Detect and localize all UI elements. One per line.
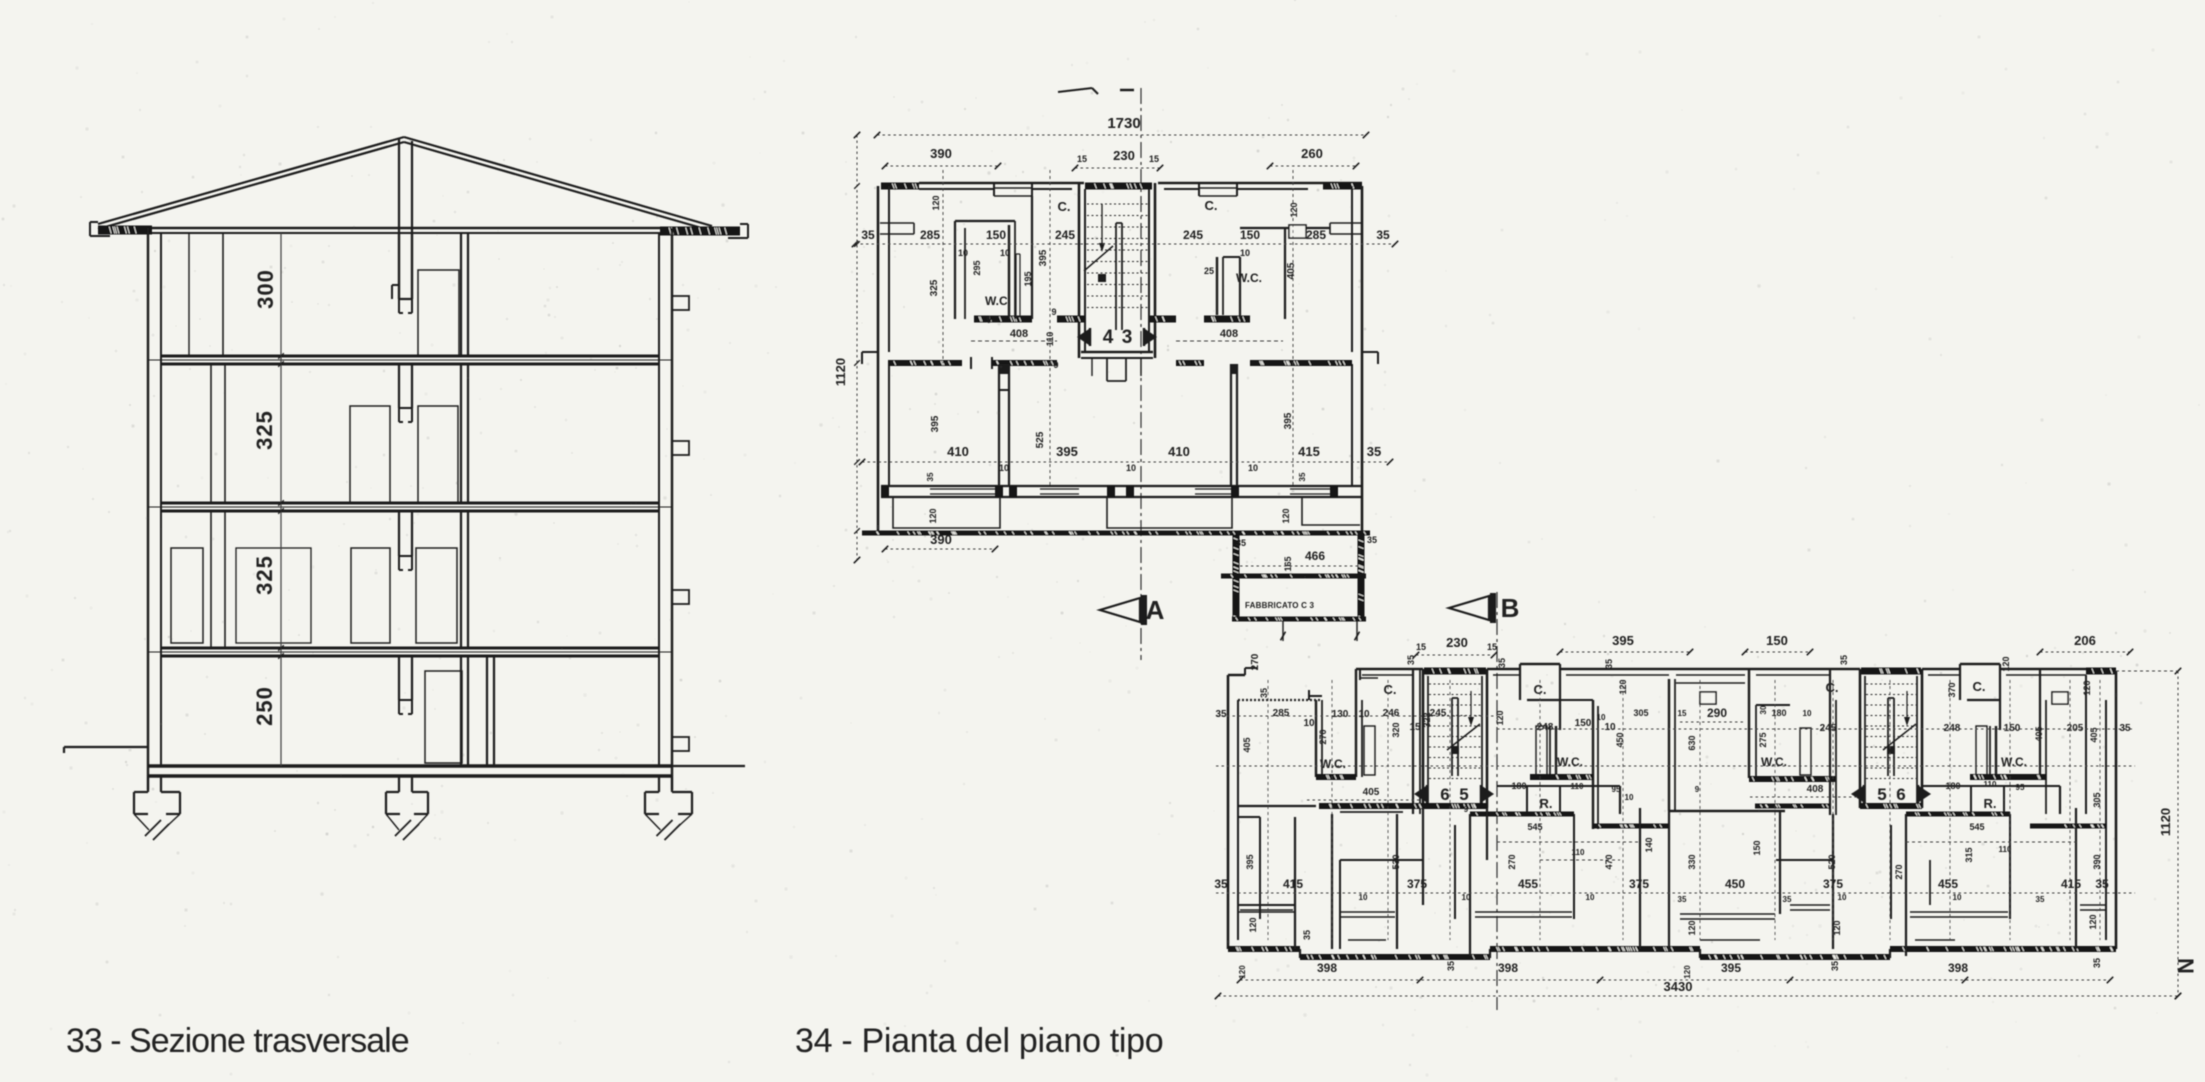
svg-text:398: 398 [1948, 961, 1968, 975]
svg-text:35: 35 [1215, 709, 1227, 720]
svg-text:525: 525 [1035, 431, 1046, 448]
svg-text:230: 230 [1446, 635, 1468, 650]
svg-text:395: 395 [930, 415, 941, 432]
svg-text:W.C.: W.C. [985, 294, 1011, 308]
svg-text:35: 35 [1367, 444, 1381, 459]
svg-text:395: 395 [1283, 412, 1294, 429]
svg-text:275: 275 [1758, 732, 1768, 747]
svg-text:285: 285 [1273, 708, 1290, 719]
svg-text:375: 375 [1629, 877, 1649, 891]
svg-text:10: 10 [999, 463, 1009, 473]
svg-text:120: 120 [1238, 965, 1247, 979]
svg-text:3430: 3430 [1664, 979, 1693, 994]
svg-text:315: 315 [1964, 847, 1974, 862]
svg-text:6: 6 [1896, 785, 1905, 804]
svg-text:FABBRICATO C 3: FABBRICATO C 3 [1245, 601, 1315, 610]
svg-text:180: 180 [1771, 708, 1786, 718]
svg-text:405: 405 [2089, 727, 2099, 742]
svg-text:205: 205 [2067, 723, 2084, 734]
svg-text:395: 395 [1056, 444, 1078, 459]
svg-text:390: 390 [2092, 854, 2102, 869]
svg-text:410: 410 [1168, 444, 1190, 459]
svg-text:1120: 1120 [2158, 808, 2173, 836]
svg-text:206: 206 [2074, 633, 2096, 648]
svg-text:6: 6 [1440, 785, 1449, 804]
svg-text:9: 9 [1695, 785, 1700, 794]
svg-text:120: 120 [1495, 710, 1505, 725]
svg-text:270: 270 [1318, 729, 1328, 744]
svg-text:260: 260 [1301, 146, 1323, 161]
svg-text:120: 120 [928, 508, 938, 523]
svg-text:165: 165 [1283, 556, 1293, 571]
svg-text:375: 375 [1823, 877, 1843, 891]
svg-text:110: 110 [1984, 780, 1997, 789]
svg-text:405: 405 [2034, 726, 2044, 741]
svg-text:110: 110 [1045, 332, 1055, 347]
svg-text:35: 35 [1214, 877, 1228, 891]
svg-text:390: 390 [930, 146, 952, 161]
svg-text:C.: C. [1384, 682, 1397, 697]
svg-text:130: 130 [1332, 709, 1349, 720]
svg-text:10: 10 [1953, 893, 1962, 902]
svg-text:140: 140 [1644, 837, 1654, 852]
svg-text:35: 35 [2092, 958, 2102, 968]
svg-text:35: 35 [1302, 930, 1312, 940]
svg-text:35: 35 [926, 472, 935, 481]
svg-text:270: 270 [1507, 854, 1517, 869]
svg-text:C.: C. [1973, 679, 1986, 694]
svg-text:120: 120 [1832, 920, 1842, 935]
svg-text:415: 415 [1283, 877, 1303, 891]
svg-text:395: 395 [1245, 854, 1255, 869]
svg-text:305: 305 [2092, 792, 2102, 807]
svg-text:150: 150 [1766, 633, 1788, 648]
svg-text:10: 10 [1359, 893, 1368, 902]
svg-text:10: 10 [1604, 722, 1616, 733]
svg-text:120: 120 [1248, 917, 1258, 932]
svg-text:245: 245 [1055, 228, 1075, 242]
svg-text:1120: 1120 [833, 358, 848, 386]
svg-text:320: 320 [1391, 722, 1401, 737]
svg-text:5: 5 [1459, 785, 1468, 804]
svg-text:35: 35 [1678, 895, 1687, 904]
svg-text:W.C.: W.C. [1320, 757, 1346, 771]
svg-text:10: 10 [1240, 248, 1250, 258]
svg-text:10: 10 [1000, 248, 1010, 258]
svg-text:4: 4 [1103, 327, 1114, 348]
svg-text:405: 405 [1242, 737, 1252, 752]
svg-text:33 - Sezione trasversale: 33 - Sezione trasversale [66, 1022, 409, 1060]
svg-text:35: 35 [1236, 538, 1246, 548]
svg-text:520: 520 [1827, 854, 1837, 869]
svg-text:A: A [1146, 595, 1165, 625]
svg-text:15: 15 [1416, 642, 1426, 652]
svg-text:230: 230 [1113, 148, 1135, 163]
svg-text:150: 150 [2004, 723, 2021, 734]
svg-text:408: 408 [1807, 784, 1824, 795]
svg-text:245: 245 [1820, 723, 1837, 734]
svg-text:10: 10 [1803, 709, 1812, 718]
svg-text:150: 150 [1752, 840, 1762, 855]
svg-text:466: 466 [1305, 549, 1325, 563]
svg-text:N: N [2173, 958, 2198, 974]
svg-text:375: 375 [1407, 877, 1427, 891]
svg-text:10: 10 [1586, 893, 1595, 902]
svg-text:322: 322 [1422, 712, 1432, 727]
svg-text:10: 10 [958, 248, 968, 258]
svg-text:35: 35 [2036, 895, 2045, 904]
svg-text:325: 325 [929, 279, 940, 296]
svg-text:295: 295 [972, 260, 982, 275]
svg-text:10: 10 [1625, 793, 1634, 802]
svg-text:10: 10 [1303, 718, 1315, 729]
svg-text:180: 180 [1945, 781, 1960, 791]
svg-text:370: 370 [1947, 682, 1957, 697]
svg-text:R.: R. [1540, 796, 1553, 811]
svg-text:35: 35 [1298, 472, 1307, 481]
svg-text:W.C.: W.C. [1557, 755, 1583, 769]
svg-text:30: 30 [1759, 705, 1768, 714]
svg-text:C.: C. [1205, 198, 1218, 213]
svg-text:35: 35 [2095, 877, 2109, 891]
svg-text:248: 248 [1944, 723, 1961, 734]
svg-text:330: 330 [1687, 854, 1697, 869]
svg-text:270: 270 [1894, 864, 1904, 879]
svg-text:408: 408 [1010, 328, 1028, 340]
svg-text:1730: 1730 [1107, 115, 1140, 132]
svg-text:34 - Pianta del piano tipo: 34 - Pianta del piano tipo [795, 1022, 1163, 1060]
svg-text:25: 25 [1204, 266, 1214, 276]
svg-text:120: 120 [1289, 202, 1299, 217]
svg-text:150: 150 [986, 228, 1006, 242]
svg-text:35: 35 [1604, 659, 1614, 669]
svg-text:530: 530 [1391, 854, 1401, 869]
svg-text:410: 410 [947, 444, 969, 459]
svg-text:195: 195 [1023, 271, 1033, 286]
svg-text:35: 35 [1839, 655, 1849, 665]
svg-text:W.C.: W.C. [1236, 271, 1262, 285]
svg-text:110: 110 [1571, 782, 1584, 791]
svg-text:120: 120 [2082, 680, 2092, 695]
svg-text:390: 390 [930, 532, 952, 547]
svg-text:250: 250 [252, 686, 277, 726]
svg-text:10: 10 [1462, 893, 1471, 902]
svg-text:9: 9 [1053, 360, 1058, 370]
svg-text:455: 455 [1518, 877, 1538, 891]
svg-text:15: 15 [1077, 154, 1087, 164]
svg-text:5: 5 [1877, 785, 1886, 804]
svg-text:305: 305 [1633, 708, 1648, 718]
svg-text:120: 120 [931, 195, 941, 210]
svg-text:9: 9 [1464, 805, 1469, 814]
svg-text:285: 285 [1306, 228, 1326, 242]
svg-text:10: 10 [1126, 463, 1136, 473]
svg-text:325: 325 [252, 555, 277, 595]
svg-text:395: 395 [1721, 961, 1741, 975]
svg-text:95: 95 [1612, 785, 1621, 794]
svg-text:35: 35 [1259, 688, 1269, 698]
svg-text:248: 248 [1537, 722, 1554, 733]
svg-text:455: 455 [1938, 877, 1958, 891]
svg-text:405: 405 [1363, 787, 1380, 798]
svg-text:35: 35 [1406, 655, 1416, 665]
svg-text:630: 630 [1687, 735, 1697, 750]
svg-text:245: 245 [1183, 228, 1203, 242]
svg-text:15: 15 [1678, 709, 1687, 718]
svg-text:325: 325 [252, 410, 277, 450]
svg-text:450: 450 [1615, 732, 1625, 747]
svg-text:35: 35 [2119, 723, 2131, 734]
svg-text:150: 150 [1575, 718, 1592, 729]
svg-text:395: 395 [1612, 633, 1634, 648]
svg-text:10: 10 [1248, 463, 1258, 473]
svg-text:35: 35 [1783, 895, 1792, 904]
svg-text:35: 35 [1497, 658, 1507, 668]
svg-text:R.: R. [1984, 796, 1997, 811]
svg-text:270: 270 [1250, 653, 1261, 670]
svg-text:120: 120 [2088, 914, 2098, 929]
svg-text:120: 120 [2001, 656, 2011, 671]
svg-text:545: 545 [1969, 822, 1984, 832]
svg-text:246: 246 [1383, 708, 1400, 719]
svg-text:9: 9 [986, 315, 991, 325]
svg-text:120: 120 [1683, 965, 1692, 979]
svg-text:415: 415 [1298, 444, 1320, 459]
svg-text:C.: C. [1058, 199, 1071, 214]
svg-text:10: 10 [1597, 713, 1606, 722]
svg-text:B: B [1501, 593, 1520, 623]
svg-text:398: 398 [1498, 961, 1518, 975]
svg-text:470: 470 [1604, 854, 1614, 869]
svg-text:10: 10 [1838, 893, 1847, 902]
svg-text:35: 35 [1830, 961, 1840, 971]
svg-text:415: 415 [2061, 877, 2081, 891]
svg-text:290: 290 [1707, 706, 1727, 720]
svg-text:245: 245 [1430, 708, 1447, 719]
svg-text:W.C.: W.C. [1761, 755, 1787, 769]
svg-text:300: 300 [253, 269, 278, 309]
svg-text:120: 120 [1281, 508, 1291, 523]
svg-text:405: 405 [1286, 262, 1297, 279]
svg-text:35: 35 [1367, 535, 1377, 545]
svg-text:450: 450 [1725, 877, 1745, 891]
svg-text:15: 15 [1409, 722, 1421, 733]
svg-text:35: 35 [1376, 228, 1390, 242]
svg-text:285: 285 [920, 228, 940, 242]
svg-text:395: 395 [1038, 249, 1049, 266]
svg-text:C.: C. [1826, 680, 1839, 695]
svg-text:15: 15 [1149, 154, 1159, 164]
svg-text:180: 180 [1511, 781, 1526, 791]
svg-text:10: 10 [1358, 709, 1370, 720]
svg-text:120: 120 [1687, 920, 1697, 935]
svg-text:35: 35 [1446, 961, 1456, 971]
svg-text:9: 9 [1051, 307, 1056, 317]
svg-text:110: 110 [1572, 848, 1585, 857]
svg-text:150: 150 [1240, 228, 1260, 242]
svg-text:15: 15 [1487, 642, 1497, 652]
svg-text:35: 35 [861, 228, 875, 242]
svg-text:95: 95 [2016, 783, 2025, 792]
svg-text:398: 398 [1317, 961, 1337, 975]
svg-text:3: 3 [1122, 327, 1133, 348]
